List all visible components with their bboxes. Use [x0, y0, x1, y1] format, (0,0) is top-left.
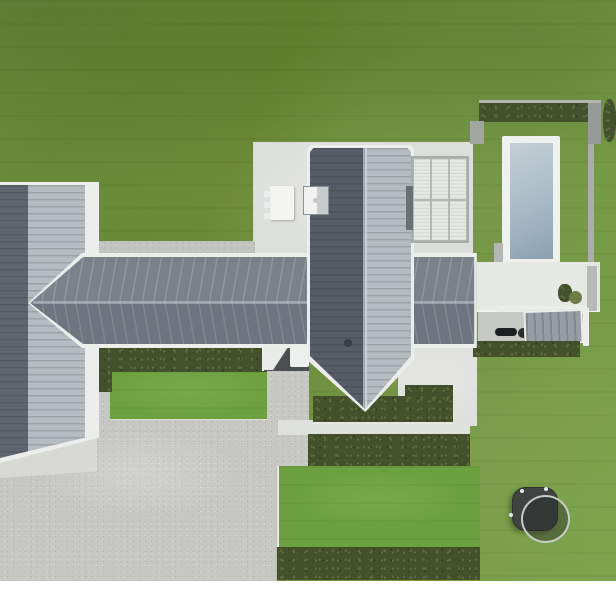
hedge-row-bottom [277, 547, 480, 580]
outdoor-chair [264, 191, 271, 197]
pergola-louver-panel [432, 201, 448, 241]
bbq-grill [495, 328, 517, 336]
trampoline-clip [520, 489, 524, 493]
pool-wall-stub [494, 243, 503, 264]
corner-bush [603, 99, 616, 142]
pergola-louver-panel [450, 159, 466, 199]
roof-skylight [303, 186, 329, 215]
roof-vent [344, 339, 352, 347]
aerial-photo-canvas [0, 0, 616, 616]
pergola-beam [406, 186, 413, 230]
outbuilding-wall [583, 308, 589, 346]
photo-bottom-margin [0, 581, 616, 616]
louvered-pergola [411, 156, 469, 243]
grass-rectangle-south [277, 466, 480, 548]
pool-hedge [479, 103, 601, 122]
cross-wing-ridge [363, 148, 367, 409]
pool-patio [477, 262, 600, 312]
west-wing-slope-west [0, 185, 28, 458]
patio-post [587, 266, 597, 311]
pool-wall-right-lower [588, 144, 594, 263]
pergola-louver-panel [450, 201, 466, 241]
trampoline-net-ring [521, 495, 570, 543]
hedge-row-west [92, 346, 267, 372]
trampoline-clip [509, 513, 513, 517]
pool-wall-right-upper [588, 103, 601, 144]
pool-wall-left [470, 121, 484, 144]
outdoor-table [270, 186, 294, 220]
roof-skylight-dot [313, 198, 318, 203]
patio-planter-bush-small [569, 291, 582, 304]
bbq-area [478, 312, 524, 342]
pergola-louver-panel [414, 159, 430, 199]
roof-skylight-shadow [317, 187, 328, 214]
outdoor-chair [264, 202, 271, 208]
grass-rectangle-west [110, 371, 267, 420]
pergola-louver-panel [414, 201, 430, 241]
pergola-louver-panel [432, 159, 448, 199]
hedge-planter-south-east [405, 385, 453, 399]
hedge-row-middle [308, 434, 470, 468]
pool-water [510, 143, 553, 259]
outdoor-chair [264, 213, 271, 219]
hedge-planter-south [313, 396, 453, 424]
lawn [0, 0, 616, 581]
trampoline-clip [544, 487, 548, 491]
outbuilding-roof [523, 309, 583, 345]
outbuilding-hedge [473, 341, 580, 357]
